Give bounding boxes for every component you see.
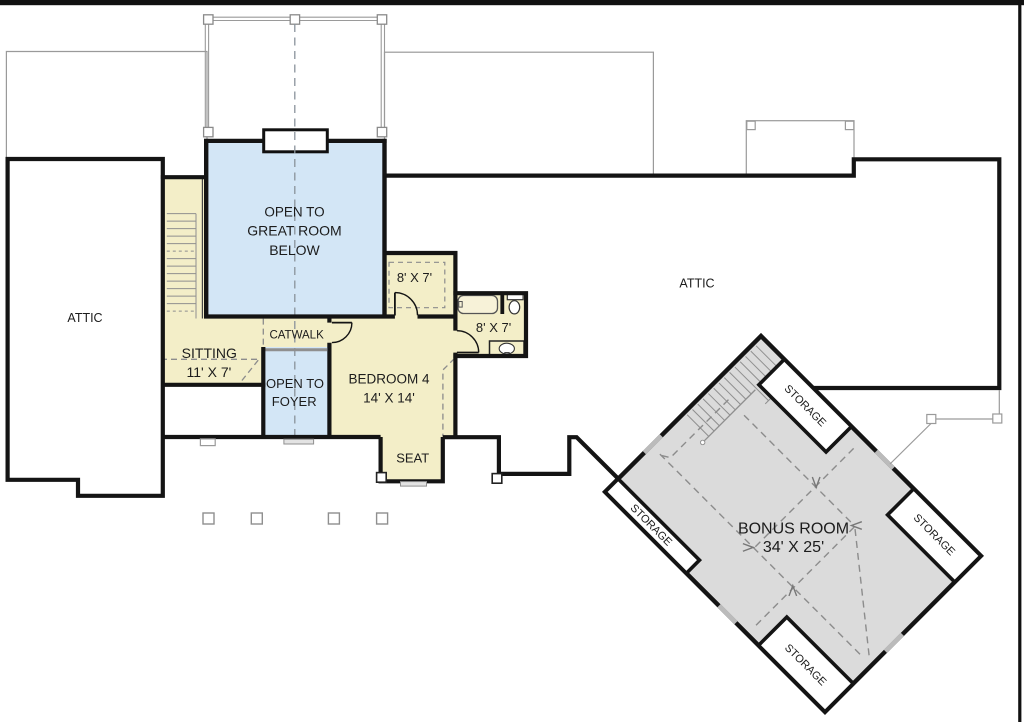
svg-text:SEAT: SEAT: [396, 451, 429, 466]
svg-text:8' X 7': 8' X 7': [476, 320, 511, 335]
svg-text:FOYER: FOYER: [272, 394, 317, 409]
svg-text:GREAT ROOM: GREAT ROOM: [247, 223, 341, 239]
svg-text:CATWALK: CATWALK: [269, 329, 324, 341]
svg-text:BONUS ROOM: BONUS ROOM: [738, 521, 849, 538]
svg-text:34' X 25': 34' X 25': [763, 539, 824, 556]
svg-text:OPEN TO: OPEN TO: [264, 205, 324, 220]
svg-text:11' X 7': 11' X 7': [187, 364, 232, 380]
svg-text:BELOW: BELOW: [269, 242, 320, 258]
svg-text:ATTIC: ATTIC: [67, 311, 102, 325]
svg-text:8' X 7': 8' X 7': [397, 270, 432, 285]
svg-text:14' X 14': 14' X 14': [363, 391, 415, 406]
svg-text:BEDROOM 4: BEDROOM 4: [348, 372, 430, 387]
svg-text:OPEN TO: OPEN TO: [266, 376, 324, 391]
svg-text:ATTIC: ATTIC: [679, 277, 714, 291]
svg-text:SITTING: SITTING: [182, 345, 237, 361]
